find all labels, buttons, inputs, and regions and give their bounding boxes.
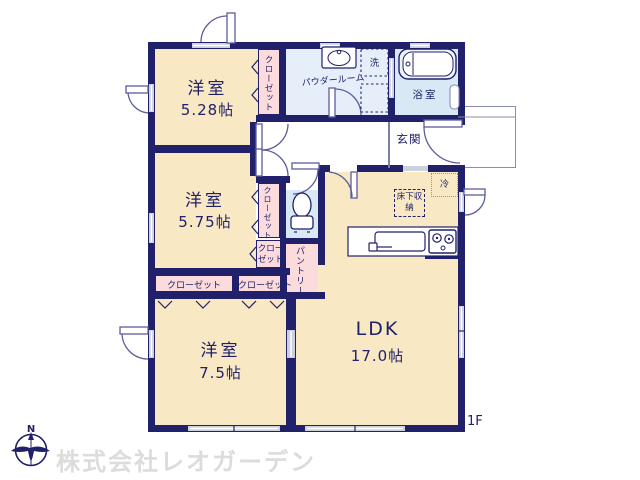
wall-ldk-top-c <box>428 165 458 172</box>
wall-ldk-top-b <box>357 165 403 172</box>
closet-right-label: クローゼット <box>238 278 287 291</box>
window-room2-left <box>149 213 154 243</box>
window-bath-top <box>410 43 430 48</box>
wall-toilet-pantry <box>280 238 325 244</box>
wall-outer-right <box>458 42 465 432</box>
room2-size: 5.75帖 <box>155 211 255 232</box>
room2-closet-label: クローゼット <box>262 186 273 236</box>
compass-icon <box>11 432 50 466</box>
hall-vestibule-floor <box>256 122 290 176</box>
opening-hall-ldk-step <box>403 166 428 171</box>
wall-room3-ldk <box>286 299 296 425</box>
room1-left-window-arc <box>128 93 148 113</box>
floorplan-canvas: 冷 床下収納 洋室 5.28帖 洋室 5.75帖 洋室 7.5帖 LDK 17.… <box>0 0 640 480</box>
window-room1-left <box>149 84 154 112</box>
room3-left-window-arc <box>122 334 148 359</box>
door-ldk-east <box>459 192 464 212</box>
window-room3-bottom <box>188 426 280 431</box>
hall-closet-label: クローゼット <box>257 244 284 266</box>
wall-ldk-left-upper <box>318 165 325 265</box>
pantry-label: パントリー <box>293 246 306 292</box>
room3-label: 洋室 <box>163 336 278 361</box>
washer-label: 洗 <box>361 55 388 69</box>
window-room1-top <box>192 43 230 48</box>
door-bath-slider <box>389 58 394 98</box>
ldk-east-door-leaf <box>464 189 485 195</box>
door-room3-slider <box>287 330 295 358</box>
wall-closet1-powder <box>280 49 286 115</box>
room3-size: 7.5帖 <box>163 362 278 383</box>
room2-label: 洋室 <box>155 186 255 211</box>
room1-closet-label: クローゼット <box>262 54 274 112</box>
toilet-corridor-floor <box>286 168 318 190</box>
room3-left-window-leaf <box>120 327 148 334</box>
fridge-box: 冷 <box>431 173 458 197</box>
window-room3-left <box>149 330 154 358</box>
opening-ldk-door <box>330 165 357 172</box>
toilet-floor <box>286 190 318 238</box>
entrance-porch <box>458 106 516 168</box>
wall-room1-room2 <box>148 145 256 153</box>
company-watermark: 株式会社レオガーデン <box>56 442 316 477</box>
window-ldk-bottom <box>305 426 405 431</box>
fridge-label: 冷 <box>440 180 449 190</box>
ldk-label: LDK <box>320 318 435 340</box>
compass-north-label: N <box>24 424 38 435</box>
closet-left-label: クローゼット <box>155 278 233 291</box>
ldk-size: 17.0帖 <box>320 345 435 366</box>
room1-top-window-leaf <box>227 13 235 43</box>
wall-closet2-toilet <box>280 176 286 245</box>
wall-room2-closets <box>148 268 290 275</box>
underfloor-storage-box: 床下収納 <box>394 189 425 217</box>
window-ldk-right <box>459 306 464 358</box>
room1-label: 洋室 <box>160 74 255 99</box>
opening-entrance-door <box>458 125 465 165</box>
entrance-label: 玄関 <box>386 131 432 147</box>
underfloor-storage-label: 床下収納 <box>397 192 423 213</box>
window-powder-top <box>320 43 340 48</box>
room1-top-window-arc <box>201 16 227 42</box>
room1-left-window-leaf <box>126 86 148 93</box>
room1-size: 5.28帖 <box>160 99 255 120</box>
bathroom-label: 浴室 <box>403 87 447 102</box>
bathroom-floor <box>395 49 458 115</box>
ldk-east-door-arc <box>465 195 485 215</box>
wall-hall-top <box>256 115 458 122</box>
floor-label: 1F <box>467 414 497 429</box>
wall-kitchen-end <box>425 252 458 259</box>
